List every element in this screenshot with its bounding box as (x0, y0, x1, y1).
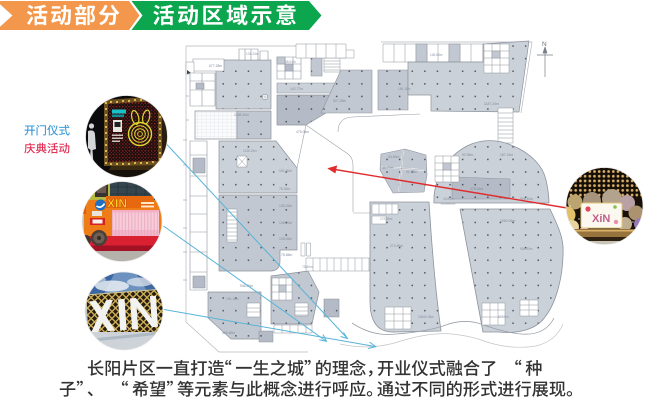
svg-text:N: N (542, 41, 547, 48)
svg-text:187.24m: 187.24m (500, 153, 513, 157)
svg-text:54.80m: 54.80m (388, 155, 399, 159)
svg-text:1060b.06m: 1060b.06m (418, 315, 434, 319)
svg-text:677.28m: 677.28m (209, 64, 222, 68)
svg-text:152.30m: 152.30m (279, 169, 292, 173)
svg-text:1060.06m: 1060.06m (500, 219, 515, 223)
svg-text:68.04m: 68.04m (285, 60, 296, 64)
svg-text:499.86m: 499.86m (222, 331, 235, 335)
svg-text:527.28m: 527.28m (333, 99, 346, 103)
svg-text:906.40m: 906.40m (520, 247, 533, 251)
svg-text:128.06m: 128.06m (279, 237, 292, 241)
svg-text:75.80m: 75.80m (302, 265, 313, 269)
svg-text:1187.24m: 1187.24m (484, 102, 499, 106)
svg-text:92.96m: 92.96m (462, 153, 473, 157)
svg-text:177.9m: 177.9m (498, 315, 509, 319)
svg-text:75.32m: 75.32m (279, 187, 290, 191)
svg-text:43.77m: 43.77m (382, 166, 393, 170)
svg-text:91.46m: 91.46m (406, 170, 417, 174)
svg-text:45.86m: 45.86m (443, 197, 454, 201)
svg-text:272.86m: 272.86m (390, 244, 403, 248)
svg-text:131.24m: 131.24m (246, 52, 259, 56)
svg-text:186.18m: 186.18m (398, 87, 411, 91)
svg-text:142.77m: 142.77m (290, 87, 303, 91)
svg-text:272.86m: 272.86m (380, 217, 393, 221)
svg-text:XiN: XiN (592, 213, 610, 225)
svg-text:136.20m: 136.20m (279, 221, 292, 225)
svg-text:478.46m: 478.46m (470, 187, 483, 191)
svg-text:186.18m: 186.18m (226, 297, 239, 301)
svg-text:126.68m: 126.68m (430, 53, 443, 57)
svg-text:1138.26m: 1138.26m (234, 113, 249, 117)
svg-text:475.04m: 475.04m (296, 130, 309, 134)
svg-text:1138.26m: 1138.26m (243, 149, 257, 153)
svg-text:138.26m: 138.26m (279, 204, 292, 208)
svg-text:75.86m: 75.86m (281, 253, 292, 257)
svg-text:XIN: XIN (107, 197, 127, 211)
